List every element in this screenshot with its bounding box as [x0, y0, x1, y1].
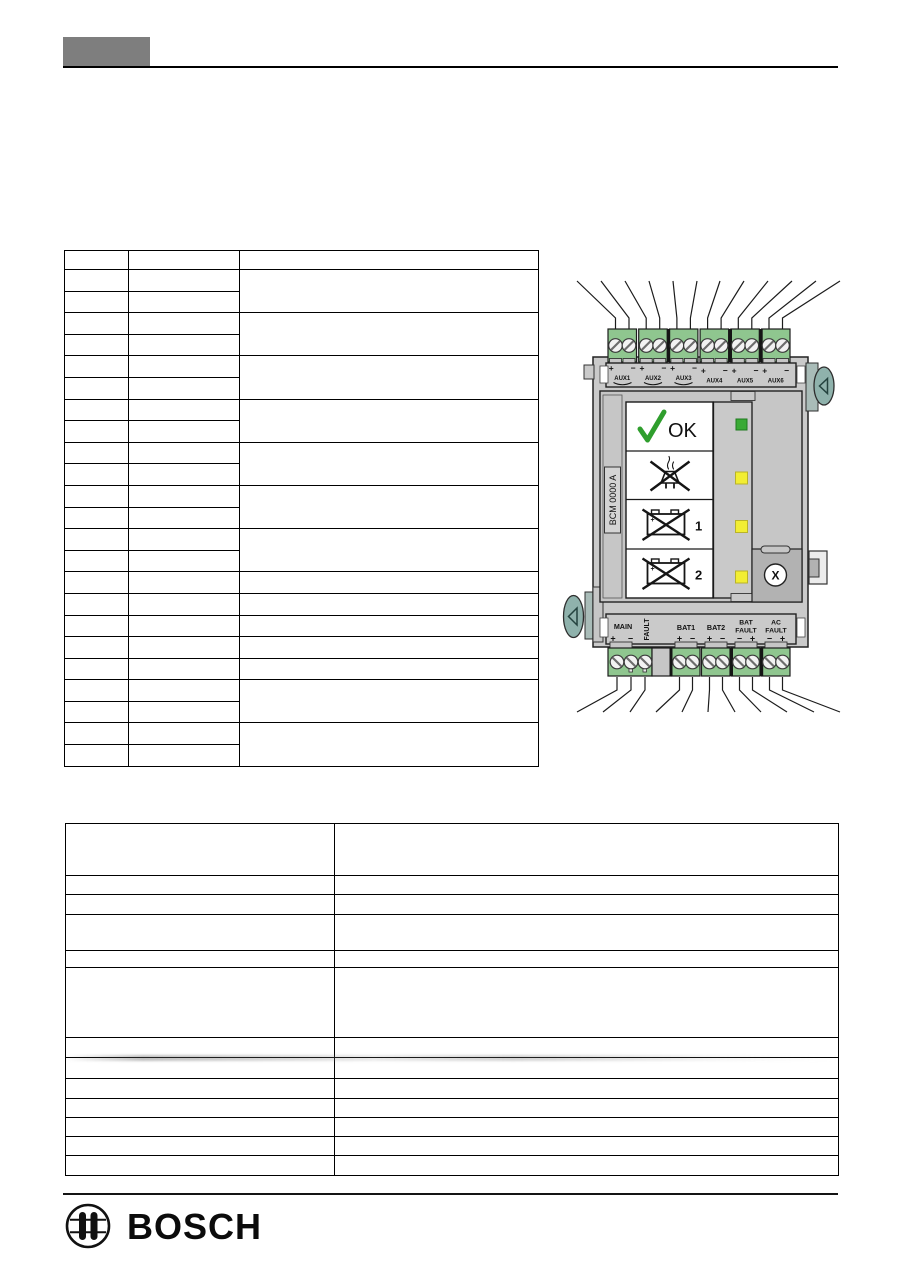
table-cell — [129, 485, 240, 507]
table-cell — [129, 399, 240, 421]
table-cell — [240, 572, 539, 594]
model-label: BCM 0000 A — [608, 475, 618, 526]
table-cell — [240, 593, 539, 615]
aux-plus: + — [701, 366, 706, 376]
aux-minus: − — [754, 366, 759, 376]
table-cell — [129, 421, 240, 443]
table-cell — [129, 529, 240, 551]
aux-terminal-label: AUX5 — [737, 379, 754, 385]
table-cell — [66, 1118, 335, 1137]
strip-end-tab — [797, 618, 805, 637]
top-wiring-lines — [577, 281, 840, 332]
table-cell — [129, 270, 240, 292]
table-cell — [65, 442, 129, 464]
table-cell — [65, 658, 129, 680]
battery2-number: 2 — [695, 568, 702, 583]
table-cell — [240, 680, 539, 723]
bat2-label: BAT2 — [707, 623, 725, 632]
table-cell — [66, 876, 335, 895]
table-cell — [65, 572, 129, 594]
table-cell — [65, 593, 129, 615]
table-cell — [65, 270, 129, 292]
aux-terminal-label: AUX6 — [768, 379, 785, 385]
table-cell — [240, 270, 539, 313]
bottom-wiring-lines — [577, 677, 840, 712]
table-cell — [129, 507, 240, 529]
battery1-number: 1 — [695, 519, 702, 534]
table-cell — [65, 637, 129, 659]
table-cell — [129, 291, 240, 313]
scan-artifact-streak — [65, 1055, 838, 1061]
bat-fault-line1: BAT — [739, 620, 753, 627]
table-cell — [129, 745, 240, 767]
strip-end-tab — [600, 618, 608, 637]
table-cell — [129, 334, 240, 356]
fault-label: FAULT — [644, 618, 651, 641]
bosch-logo: BOSCH — [63, 1200, 283, 1252]
table-cell — [240, 251, 539, 270]
table-cell — [129, 637, 240, 659]
table-cell — [129, 251, 240, 270]
led-column — [714, 402, 753, 598]
table-cell — [240, 399, 539, 442]
redacted-header-label — [63, 37, 150, 67]
ac-fault-line1: AC — [771, 620, 781, 627]
main-label: MAIN — [614, 622, 632, 631]
ok-label: OK — [668, 420, 698, 442]
table-cell — [65, 701, 129, 723]
table-cell — [65, 251, 129, 270]
table-cell — [129, 356, 240, 378]
table-cell — [66, 951, 335, 968]
aux-plus: + — [670, 363, 675, 373]
aux-plus: + — [639, 363, 644, 373]
led-column-tab — [731, 392, 755, 401]
aux-minus: − — [784, 366, 789, 376]
lower-table — [65, 823, 839, 1176]
body-tab-top-left — [584, 365, 594, 379]
table-cell — [65, 356, 129, 378]
table-cell — [129, 701, 240, 723]
table-cell — [65, 485, 129, 507]
table-cell — [66, 824, 335, 876]
battery1-fault-led — [736, 521, 748, 533]
table-cell — [65, 550, 129, 572]
table-cell — [65, 399, 129, 421]
table-cell — [66, 915, 335, 951]
table-cell — [65, 464, 129, 486]
table-cell — [240, 485, 539, 528]
table-cell — [240, 529, 539, 572]
table-cell — [335, 1118, 839, 1137]
side-clip-notch — [809, 559, 819, 577]
table-cell — [129, 313, 240, 335]
table-cell — [65, 680, 129, 702]
table-cell — [240, 313, 539, 356]
mains-fault-led — [736, 472, 748, 484]
table-cell — [240, 637, 539, 659]
bat1-label: BAT1 — [677, 623, 695, 632]
table-cell — [129, 442, 240, 464]
table-cell — [240, 658, 539, 680]
table-cell — [66, 1156, 335, 1176]
table-cell — [66, 895, 335, 915]
mounting-screw-left — [564, 596, 584, 638]
table-cell — [240, 615, 539, 637]
aux-plus: + — [609, 363, 614, 373]
slot-handle — [761, 546, 790, 553]
table-cell — [129, 723, 240, 745]
bcm-module-diagram: +−AUX1+−AUX2+−AUX3+−AUX4+−AUX5+−AUX6 BCM… — [557, 268, 897, 730]
table-cell — [335, 824, 839, 876]
table-cell — [335, 1137, 839, 1156]
table-cell — [129, 680, 240, 702]
table-cell — [65, 745, 129, 767]
footer-rule — [63, 1193, 838, 1195]
aux-minus: − — [692, 363, 697, 373]
reset-button-label: X — [771, 569, 779, 583]
table-cell — [335, 968, 839, 1038]
aux-plus: + — [762, 366, 767, 376]
upper-left-table — [64, 250, 539, 767]
header-rule — [63, 66, 838, 68]
table-cell — [240, 723, 539, 766]
table-cell — [66, 968, 335, 1038]
table-cell — [335, 1099, 839, 1118]
table-cell — [240, 356, 539, 399]
aux-plus: + — [732, 366, 737, 376]
table-cell — [335, 1079, 839, 1099]
table-cell — [66, 1079, 335, 1099]
ok-led — [736, 419, 747, 430]
table-cell — [129, 593, 240, 615]
document-page: +−AUX1+−AUX2+−AUX3+−AUX4+−AUX5+−AUX6 BCM… — [0, 0, 900, 1273]
table-cell — [129, 615, 240, 637]
table-cell — [129, 550, 240, 572]
table-cell — [129, 377, 240, 399]
strip-end-tab — [797, 366, 805, 383]
table-cell — [65, 421, 129, 443]
table-cell — [129, 572, 240, 594]
table-cell — [65, 334, 129, 356]
table-cell — [65, 529, 129, 551]
aux-minus: − — [723, 366, 728, 376]
table-cell — [65, 313, 129, 335]
table-cell — [129, 464, 240, 486]
aux-terminal-label: AUX2 — [645, 376, 662, 382]
table-cell — [65, 377, 129, 399]
table-cell — [65, 291, 129, 313]
table-cell — [335, 951, 839, 968]
table-cell — [66, 1099, 335, 1118]
aux-terminal-label: AUX4 — [706, 379, 723, 385]
table-cell — [65, 615, 129, 637]
battery2-fault-led — [736, 571, 748, 583]
aux-minus: − — [631, 363, 636, 373]
table-cell — [335, 895, 839, 915]
bosch-armature-icon — [67, 1205, 109, 1247]
table-cell — [66, 1137, 335, 1156]
table-cell — [129, 658, 240, 680]
table-cell — [335, 876, 839, 895]
table-cell — [65, 507, 129, 529]
table-cell — [240, 442, 539, 485]
aux-minus: − — [661, 363, 666, 373]
table-cell — [335, 1156, 839, 1176]
aux-terminal-label: AUX1 — [614, 376, 631, 382]
table-cell — [65, 723, 129, 745]
table-cell — [335, 915, 839, 951]
strip-end-tab — [600, 366, 608, 383]
bosch-wordmark: BOSCH — [127, 1206, 262, 1247]
aux-terminal-label: AUX3 — [676, 376, 693, 382]
mounting-screw-right — [814, 367, 834, 405]
